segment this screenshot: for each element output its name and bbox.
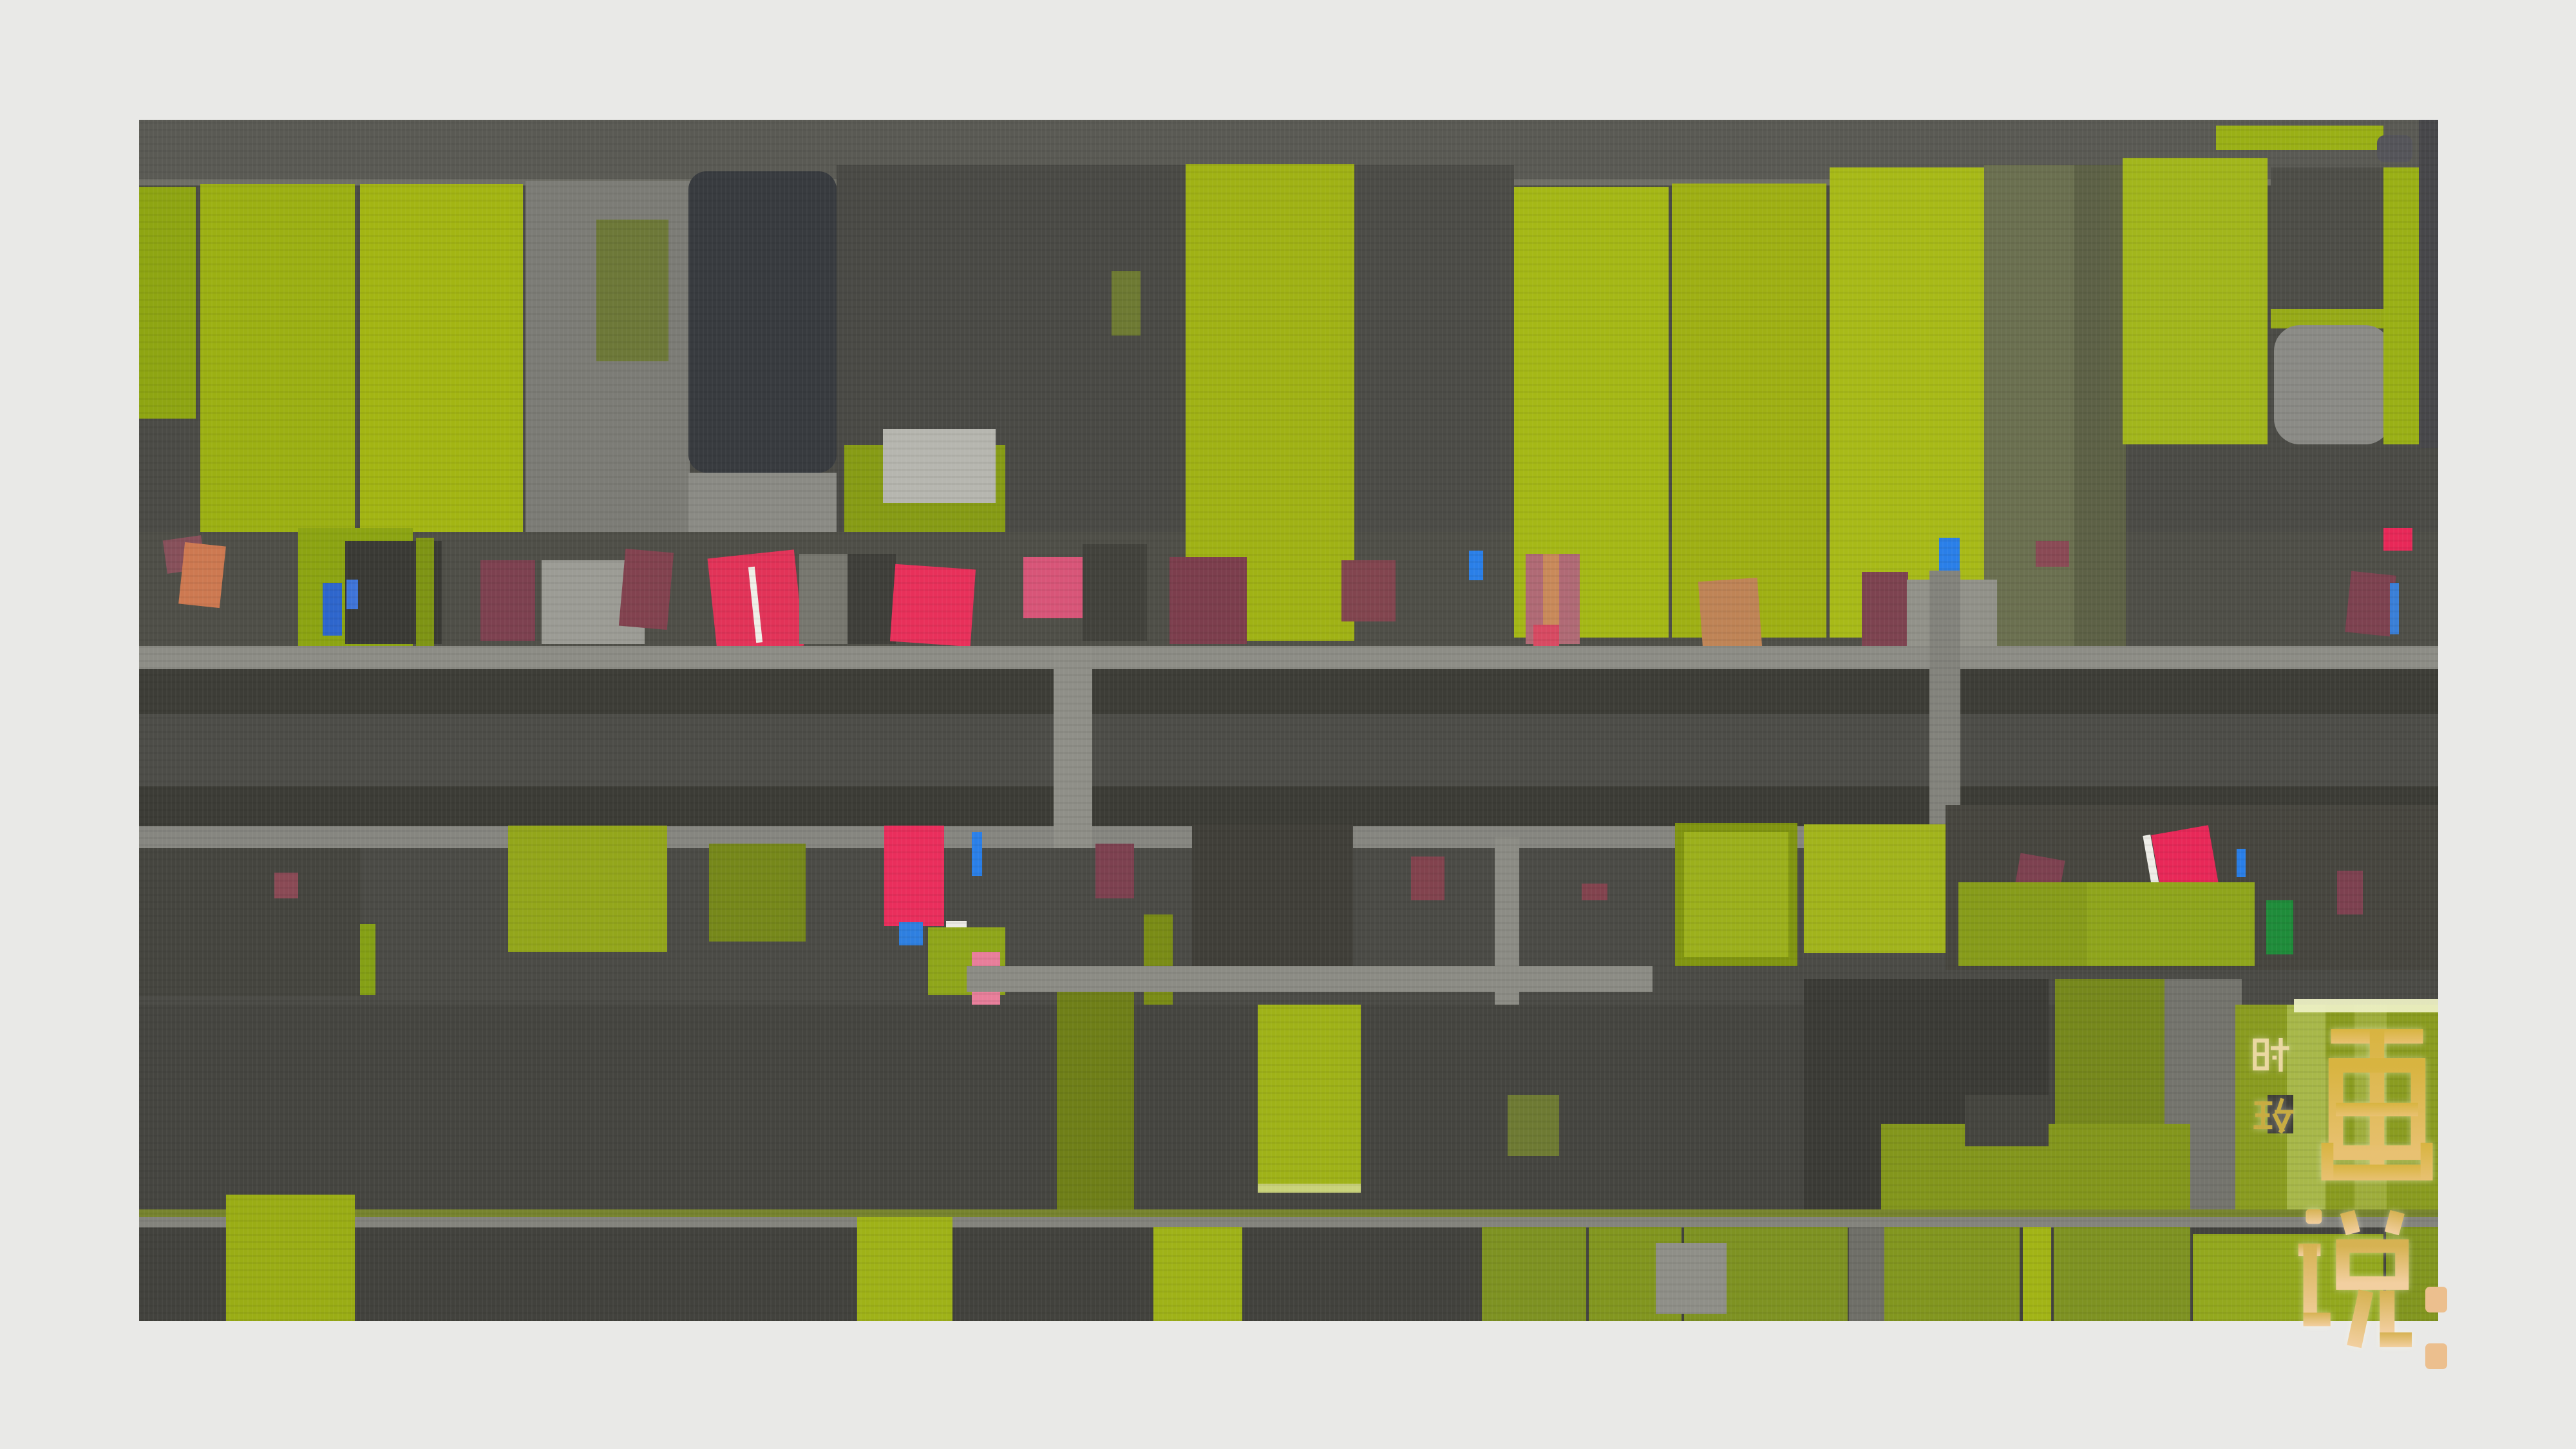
roof-maroon-r2d: [1582, 884, 1607, 900]
roof-maroon-6: [1862, 572, 1908, 658]
watermark-field-light2: [2354, 1005, 2387, 1211]
blue-strip-r2b: [2237, 849, 2246, 877]
row2-dark-a: [139, 848, 361, 996]
framed-field: [1675, 823, 1797, 966]
field-j: [1672, 184, 1826, 638]
blue-strip-r2: [899, 922, 923, 945]
mossy-field-r2a: [1958, 882, 2087, 966]
blue-truck-1b: [346, 580, 358, 609]
green-sliver: [416, 538, 434, 647]
dark-edge-right: [2419, 120, 2438, 448]
olive-mini: [1112, 271, 1141, 336]
road-vertical-3: [1495, 837, 1519, 1005]
field-k: [1830, 167, 1984, 638]
mossy-field-r2b: [2087, 882, 2255, 966]
roof-crimson-3: [2383, 528, 2412, 551]
olive-field-b: [709, 844, 806, 942]
roof-maroon-r2a: [274, 873, 298, 898]
blue-truck-r2: [972, 832, 982, 876]
green-top-strip: [2216, 126, 2383, 150]
road-3-gray: [139, 1217, 2438, 1227]
roof-orange: [178, 542, 226, 608]
watermark-main-label: 画说: [0, 0, 1, 1]
road-row2: [967, 966, 1653, 992]
field-b: [360, 184, 523, 532]
roof-maroon-r2b: [1095, 844, 1134, 898]
roof-crimson-big: [884, 826, 944, 926]
striped-field-r2: [1804, 824, 1946, 953]
emerald-patch: [2266, 900, 2293, 954]
pond-gray: [2274, 325, 2391, 444]
roof-maroon-5: [1341, 560, 1396, 621]
green-strip-right: [2383, 167, 2419, 444]
roof-pink-1: [1023, 557, 1083, 618]
aerial-photo: [139, 120, 2438, 1321]
dark-notch: [1965, 1095, 2049, 1146]
green-bottom-left: [226, 1195, 355, 1321]
field-a: [200, 184, 355, 532]
roof-maroon-3: [619, 549, 674, 630]
watermark-small-label: 时政: [0, 0, 1, 1]
pond-shore: [688, 473, 837, 532]
dark-building-3: [1083, 544, 1147, 641]
road-3-olive: [139, 1209, 2438, 1217]
bright-column-1: [1258, 1005, 1361, 1193]
blue-truck-1: [323, 583, 342, 636]
roof-maroon-2: [480, 560, 535, 641]
green-strip-left: [139, 187, 196, 419]
olive-column-1: [1057, 992, 1134, 1209]
row2-dark-b: [1192, 824, 1353, 966]
green-bottom-2: [1153, 1227, 1242, 1321]
mossy-bottom-5: [2054, 1227, 2190, 1321]
roof-maroon-4: [1170, 557, 1247, 644]
charcoal-h: [1354, 165, 1514, 532]
roof-crimson-2: [890, 564, 976, 647]
roof-maroon-8: [2345, 571, 2396, 637]
field-n: [2123, 158, 2268, 444]
road-vertical-1: [1054, 646, 1092, 848]
bright-column-edge: [1258, 1184, 1361, 1193]
blue-strip-3: [2390, 583, 2399, 634]
bright-bottom: [2023, 1227, 2051, 1321]
mossy-bottom-6: [2386, 1227, 2438, 1321]
olive-patch: [596, 220, 668, 361]
greenhouse-gray: [883, 429, 996, 503]
blue-truck-2: [1469, 551, 1483, 580]
gray-column-bottom: [1849, 1227, 1884, 1321]
roof-maroon-r2c: [1411, 857, 1444, 900]
canal-band: [139, 714, 2438, 786]
mossy-bottom-4: [1884, 1227, 2020, 1321]
pond: [688, 171, 837, 473]
dark-blob: [2377, 135, 2412, 162]
mottle-m: [2074, 165, 2126, 647]
green-bottom-right: [2193, 1234, 2383, 1321]
mossy-field-a: [508, 826, 667, 952]
road-1: [139, 646, 2438, 669]
gray-t-object: [1656, 1243, 1727, 1314]
gray-yard-1b: [799, 554, 848, 644]
olive-patch-2: [1508, 1095, 1559, 1156]
roof-maroon-r2f: [2337, 871, 2363, 914]
mossy-bottom-1: [1482, 1227, 1586, 1321]
roof-maroon-7: [2036, 541, 2069, 567]
watermark-field: [2235, 1005, 2438, 1211]
green-sliver-2: [360, 924, 375, 995]
tree-strip-1: [139, 669, 2438, 714]
page-background: { "image": { "description": "aerial dron…: [0, 0, 2576, 1449]
green-bottom-1: [857, 1217, 952, 1321]
dark-plot-o: [2271, 167, 2383, 309]
mottle-l: [1984, 165, 2074, 647]
watermark-colon-label: ：: [0, 0, 1, 1]
shed-dark: [2268, 1095, 2293, 1133]
